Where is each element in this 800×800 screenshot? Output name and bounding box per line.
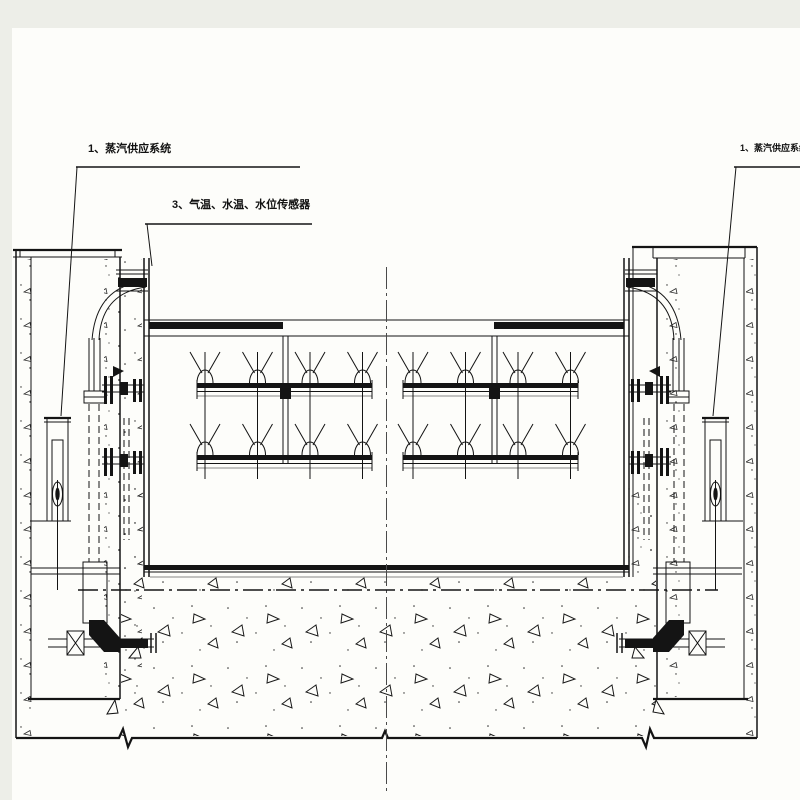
drawing-canvas: 1、蒸汽供应系统 3、气温、水温、水位传感器 1、蒸汽供应系统 — [0, 0, 800, 800]
leader-right-system — [713, 167, 736, 416]
left-pier — [13, 250, 142, 738]
nozzle-row-lower — [190, 424, 586, 455]
gate-right-edge — [624, 258, 629, 577]
drop-pipe-left — [283, 336, 288, 463]
label-left-system: 1、蒸汽供应系统 — [88, 141, 171, 155]
gate-left-edge — [144, 258, 149, 577]
leader-left-system — [61, 167, 77, 416]
nozzle-grid — [190, 352, 586, 479]
drawing-page: 1、蒸汽供应系统 3、气温、水温、水位传感器 1、蒸汽供应系统 — [0, 0, 800, 800]
label-right-system: 1、蒸汽供应系统 — [740, 142, 800, 153]
drop-pipe-right — [492, 336, 497, 463]
annotation-sensors: 3、气温、水温、水位传感器 — [145, 197, 312, 266]
nozzle-row-upper — [190, 352, 586, 383]
label-sensors: 3、气温、水温、水位传感器 — [172, 197, 311, 211]
